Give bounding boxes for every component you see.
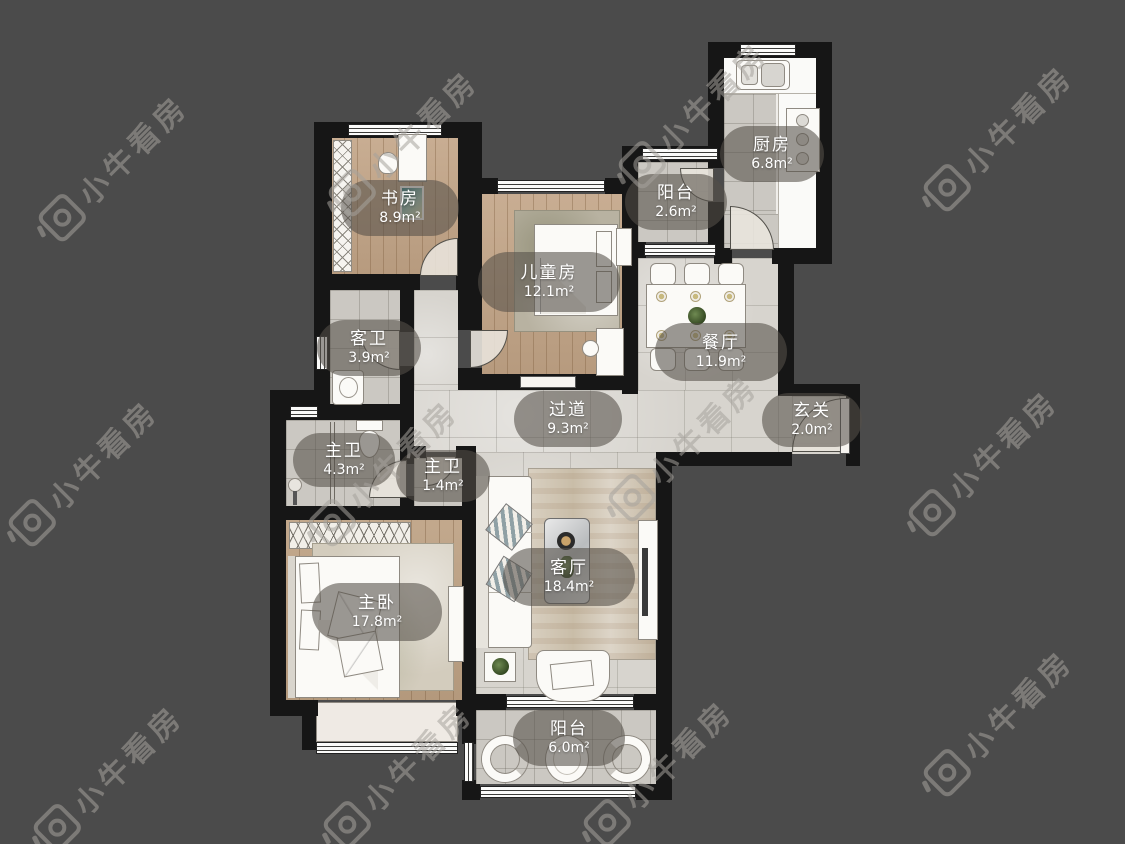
room-name: 玄关: [762, 401, 862, 422]
wall: [302, 700, 316, 750]
room-area: 3.9m²: [317, 350, 421, 368]
room-label-master_bath_small: 主卫1.4m²: [396, 450, 490, 502]
dining-plate: [656, 291, 667, 302]
room-name: 主卫: [293, 441, 395, 462]
wall: [714, 248, 732, 264]
room-label-children_room: 儿童房12.1m²: [478, 252, 620, 312]
watermark: 小牛看房: [3, 388, 166, 551]
room-area: 8.9m²: [341, 210, 459, 228]
room-name: 客厅: [503, 558, 635, 579]
study-desk: [398, 134, 427, 182]
children-desk-chair: [582, 340, 599, 357]
room-area: 17.8m²: [312, 614, 442, 632]
room-area: 12.1m²: [478, 284, 620, 302]
window-marker: [520, 376, 576, 388]
wall: [314, 122, 332, 290]
room-label-master_bath: 主卫4.3m²: [293, 433, 395, 487]
master-tv-console: [448, 586, 464, 662]
room-area: 4.3m²: [293, 462, 395, 480]
watermark: 小牛看房: [903, 378, 1066, 541]
room-label-kitchen: 厨房6.8m²: [720, 126, 824, 182]
room-area: 11.9m²: [655, 354, 787, 372]
wall: [462, 784, 480, 800]
room-name: 客卫: [317, 329, 421, 350]
stove-burner: [796, 114, 809, 127]
tv-screen: [642, 548, 648, 616]
watermark-text: 小牛看房: [937, 378, 1067, 508]
wall: [270, 390, 286, 716]
floor-plan: 书房8.9m²儿童房12.1m²阳台2.6m²厨房6.8m²客卫3.9m²餐厅1…: [0, 0, 1125, 844]
window-marker: [464, 742, 474, 782]
guest-bath-basin-bowl: [339, 377, 358, 398]
watermark-logo-icon: [5, 496, 59, 550]
watermark-logo-icon: [30, 801, 84, 844]
window-marker: [740, 44, 796, 56]
room-name: 书房: [341, 189, 459, 210]
room-name: 阳台: [513, 719, 625, 740]
room-name: 主卫: [396, 457, 490, 478]
watermark-logo-icon: [580, 796, 634, 844]
kitchen-sink-bowl-2: [761, 63, 785, 87]
living-sofa-back: [476, 476, 489, 648]
dining-chair-3: [718, 263, 744, 286]
dining-plate-2: [690, 291, 701, 302]
room-label-study: 书房8.9m²: [341, 180, 459, 236]
room-label-balcony_bottom: 阳台6.0m²: [513, 710, 625, 766]
wall: [270, 506, 462, 520]
room-area: 6.8m²: [720, 156, 824, 174]
room-label-dining: 餐厅11.9m²: [655, 323, 787, 381]
study-chair: [378, 152, 398, 174]
window-marker: [348, 124, 442, 136]
room-label-master_bedroom: 主卧17.8m²: [312, 583, 442, 641]
watermark-logo-icon: [35, 191, 89, 245]
room-label-balcony_top: 阳台2.6m²: [625, 174, 727, 230]
room-area: 2.0m²: [762, 422, 862, 440]
window-marker: [642, 148, 718, 160]
wall: [656, 694, 672, 800]
watermark-text: 小牛看房: [67, 83, 197, 213]
room-name: 餐厅: [655, 333, 787, 354]
children-nightstand: [616, 228, 632, 266]
window-marker: [644, 244, 716, 256]
kitchen-sink-bowl: [741, 65, 758, 85]
window-marker: [290, 406, 318, 418]
room-label-living_room: 客厅18.4m²: [503, 548, 635, 606]
room-area: 9.3m²: [514, 421, 622, 439]
watermark: 小牛看房: [33, 83, 196, 246]
watermark-text: 小牛看房: [62, 693, 192, 823]
floor-plan-image: 书房8.9m²儿童房12.1m²阳台2.6m²厨房6.8m²客卫3.9m²餐厅1…: [0, 0, 1125, 844]
room-area: 6.0m²: [513, 740, 625, 758]
wall: [458, 178, 498, 194]
watermark-text: 小牛看房: [37, 388, 167, 518]
shower-arm: [293, 491, 297, 505]
window-marker: [497, 180, 605, 192]
watermark: 小牛看房: [918, 638, 1081, 801]
room-area: 1.4m²: [396, 478, 490, 496]
room-name: 过道: [514, 400, 622, 421]
room-area: 18.4m²: [503, 579, 635, 597]
window-marker: [480, 786, 636, 798]
bay-window-sill: [316, 702, 458, 742]
room-area: 2.6m²: [625, 204, 727, 222]
dining-plate-3: [724, 291, 735, 302]
watermark-text: 小牛看房: [952, 638, 1082, 768]
master-bed-headboard: [288, 556, 296, 698]
side-table-plant: [492, 658, 509, 675]
room-label-hallway: 过道9.3m²: [514, 391, 622, 447]
wall: [462, 694, 506, 710]
room-name: 主卧: [312, 593, 442, 614]
window-marker: [316, 742, 458, 754]
watermark-logo-icon: [905, 486, 959, 540]
watermark: 小牛看房: [28, 693, 191, 844]
watermark: 小牛看房: [918, 53, 1081, 216]
room-name: 阳台: [625, 183, 727, 204]
room-name: 儿童房: [478, 263, 620, 284]
living-tv-console: [638, 520, 658, 640]
watermark-logo-icon: [920, 746, 974, 800]
room-name: 厨房: [720, 135, 824, 156]
wall: [846, 452, 860, 466]
watermark-text: 小牛看房: [952, 53, 1082, 183]
room-label-entry: 玄关2.0m²: [762, 393, 862, 447]
shower-head-icon: [288, 478, 302, 492]
wall: [656, 452, 672, 710]
children-desk: [596, 328, 624, 376]
watermark-logo-icon: [320, 798, 374, 844]
room-label-guest_bath: 客卫3.9m²: [317, 320, 421, 376]
wall: [778, 252, 794, 396]
armchair-pillow: [550, 660, 594, 690]
wall: [658, 452, 792, 466]
dining-chair-2: [684, 263, 710, 286]
dining-chair: [650, 263, 676, 286]
watermark-logo-icon: [920, 161, 974, 215]
